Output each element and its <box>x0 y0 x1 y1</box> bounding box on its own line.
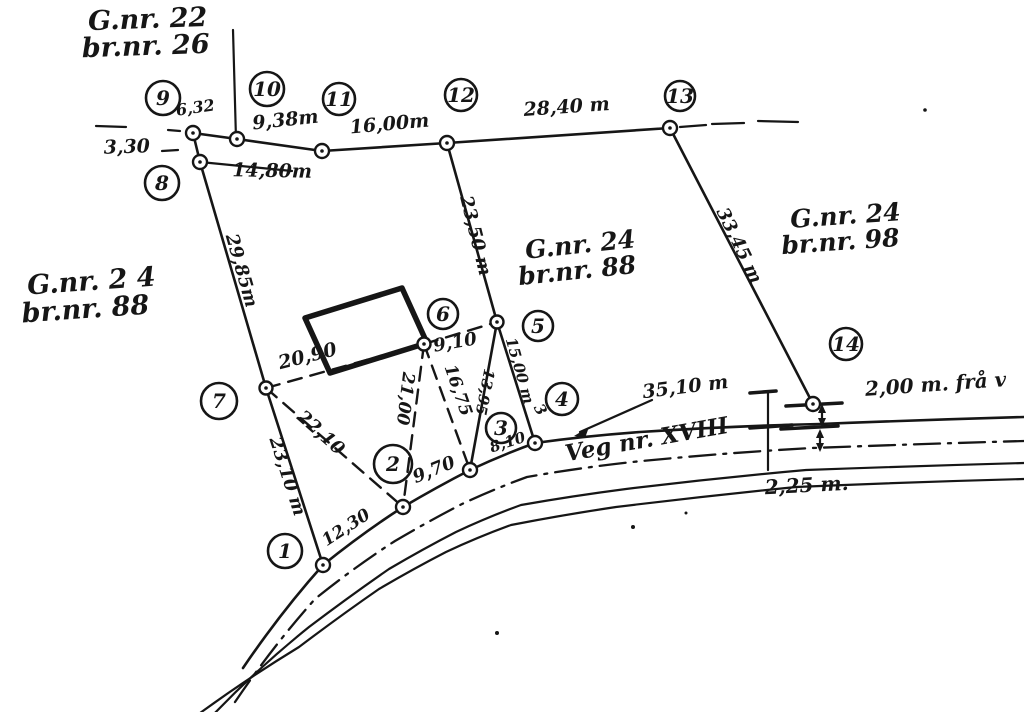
boundary-cont-left-dash1 <box>96 126 126 127</box>
survey-point-10: 10 <box>250 72 284 106</box>
dim-9-left: 3,30 <box>103 135 150 159</box>
point-10-label: 10 <box>253 77 281 101</box>
dim-road-frontage: 35,10 m <box>641 371 729 403</box>
marker-11 <box>315 144 329 158</box>
width-arrow-up <box>816 429 824 438</box>
line-10-11 <box>237 139 322 151</box>
marker-2 <box>396 500 410 514</box>
measurement-labels: 6,32 9,38m 16,00m 28,40 m 3,30 14,80m 29… <box>103 93 1007 551</box>
road-edge-lower-a <box>212 463 1024 712</box>
speck-2 <box>631 525 635 529</box>
section-tick-topbar <box>750 391 776 393</box>
parcel-topleft-line2: br.nr. 26 <box>81 29 210 64</box>
north-reference-line <box>233 30 236 139</box>
survey-map-page: 1 2 3 4 5 6 7 8 9 10 11 12 13 14 G.nr. 2… <box>0 0 1024 712</box>
width-arrow-down <box>816 443 824 452</box>
line-12-13 <box>447 128 670 143</box>
point-12-label: 12 <box>447 83 475 107</box>
speck-1 <box>495 631 499 635</box>
dash-after-330 <box>162 150 178 151</box>
dim-5-4: 15,00 m <box>502 335 538 405</box>
dim-10-11: 9,38m <box>251 106 319 135</box>
marker-1 <box>316 558 330 572</box>
road-centerline <box>235 441 1024 702</box>
marker-14 <box>806 397 820 411</box>
point-7-label: 7 <box>212 389 226 413</box>
point-11-label: 11 <box>325 87 353 111</box>
dim-11-12: 16,00m <box>349 110 430 139</box>
marker-10 <box>230 132 244 146</box>
marker-6 <box>418 338 431 351</box>
boundary-cont-right-dash2 <box>712 123 744 124</box>
dim-12-13: 28,40 m <box>522 93 611 121</box>
dim-8-11: 14,80m <box>232 159 312 182</box>
survey-markers <box>186 121 820 572</box>
marker-9 <box>186 126 200 140</box>
marker-7 <box>260 382 273 395</box>
dim-6-5: 9,10 <box>432 328 479 356</box>
dim-7-1: 23,10 m <box>264 433 310 518</box>
survey-point-6: 6 <box>428 299 458 329</box>
dim-point14-offset: 2,00 m. frå v <box>863 367 1007 401</box>
survey-point-4: 4 <box>546 383 578 415</box>
marker-5 <box>491 316 504 329</box>
survey-point-13: 13 <box>665 81 695 111</box>
parcel-labels: G.nr. 22 br.nr. 26 G.nr. 2 4 br.nr. 88 G… <box>21 2 902 330</box>
survey-point-2: 2 <box>374 445 412 483</box>
marker-13 <box>663 121 677 135</box>
dim-stray-3: 3 <box>530 400 551 418</box>
marker-8 <box>193 155 207 169</box>
line-11-12 <box>322 143 447 151</box>
marker-4 <box>528 436 542 450</box>
point-6-label: 6 <box>436 302 450 326</box>
survey-point-5: 5 <box>523 311 553 341</box>
dim-1-2: 12,30 <box>319 505 375 551</box>
road-name-label: Veg nr. XVIII <box>563 412 732 467</box>
point-9-label: 9 <box>156 86 170 110</box>
marker-12 <box>440 136 454 150</box>
marker-3 <box>463 463 477 477</box>
dim-road-width: 2,25 m. <box>763 471 849 499</box>
point-13-label: 13 <box>666 84 694 108</box>
survey-point-14: 14 <box>830 328 862 360</box>
dim-5-3: 13,95 <box>472 367 499 417</box>
dim-12-5: 23,50 m <box>455 193 495 278</box>
speck-4 <box>685 512 688 515</box>
point-8-label: 8 <box>154 171 169 195</box>
point-14-label: 14 <box>832 332 860 356</box>
speck-3 <box>923 108 927 112</box>
boundary-cont-right-dash1 <box>680 125 706 127</box>
survey-point-1: 1 <box>268 534 302 568</box>
dim-8-7: 29,85m <box>221 230 262 309</box>
dim-7-2: 22,10 <box>292 406 349 460</box>
survey-point-12: 12 <box>445 79 477 111</box>
boundary-cont-right-dash3 <box>758 121 798 122</box>
point-4-label: 4 <box>555 387 569 411</box>
dim-13-14: 33,45 m <box>712 204 767 287</box>
ink-specks <box>495 108 927 635</box>
point-1-label: 1 <box>278 539 292 563</box>
dim-6-3: 16,75 <box>440 362 476 419</box>
survey-point-11: 11 <box>323 83 355 115</box>
survey-map-drawing: 1 2 3 4 5 6 7 8 9 10 11 12 13 14 G.nr. 2… <box>0 0 1024 712</box>
boundary-cont-left-dash2 <box>168 130 180 131</box>
survey-point-7: 7 <box>201 383 237 419</box>
point-5-label: 5 <box>531 314 545 338</box>
dim-9-10: 6,32 <box>175 95 216 119</box>
dim-2-3: 9,70 <box>410 452 459 488</box>
point-2-label: 2 <box>385 452 400 476</box>
survey-point-8: 8 <box>145 166 179 200</box>
